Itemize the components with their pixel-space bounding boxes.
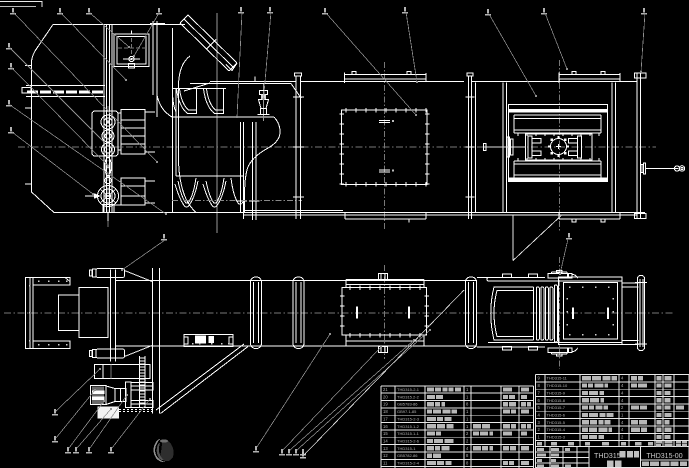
svg-text:THD315-00: THD315-00 (646, 453, 682, 460)
svg-text:THD315: THD315 (594, 451, 621, 460)
svg-text:19: 19 (383, 402, 388, 407)
svg-text:THD315-1: THD315-1 (397, 446, 416, 451)
svg-text:THD315.1-2: THD315.1-2 (397, 424, 420, 429)
svg-text:THD315-4: THD315-4 (547, 427, 566, 432)
svg-text:THD315.2-2: THD315.2-2 (397, 394, 420, 399)
svg-text:GB5782-86: GB5782-86 (397, 453, 418, 458)
svg-text:THD315-6: THD315-6 (547, 412, 566, 417)
svg-text:THD315-7: THD315-7 (547, 405, 566, 410)
svg-text:GB5783-86: GB5783-86 (397, 402, 418, 407)
svg-text:THD315-9: THD315-9 (547, 390, 566, 395)
svg-text:11: 11 (383, 461, 388, 466)
svg-text:THD315-2-6: THD315-2-6 (397, 438, 420, 443)
svg-text:GB97.1-85: GB97.1-85 (397, 409, 417, 414)
svg-text:THD315-3: THD315-3 (547, 435, 566, 440)
svg-text:13: 13 (383, 446, 388, 451)
svg-text:THD315-8: THD315-8 (547, 398, 566, 403)
svg-text:18: 18 (383, 409, 388, 414)
svg-text:THD315-11: THD315-11 (547, 376, 568, 381)
svg-text:20: 20 (383, 394, 388, 399)
svg-text:12: 12 (383, 453, 388, 458)
svg-text:THD315-2-1: THD315-2-1 (397, 387, 420, 392)
svg-text:THD315-2-4: THD315-2-4 (397, 461, 420, 466)
svg-text:21: 21 (383, 387, 388, 392)
svg-text:THD315.1-1: THD315.1-1 (397, 431, 420, 436)
svg-text:16: 16 (383, 424, 388, 429)
svg-text:THD315-10: THD315-10 (547, 383, 568, 388)
svg-text:17: 17 (383, 416, 388, 421)
svg-text:THD315-2-3: THD315-2-3 (397, 416, 420, 421)
svg-text:THD315-5: THD315-5 (547, 420, 566, 425)
svg-text:15: 15 (383, 431, 388, 436)
svg-text:14: 14 (383, 438, 388, 443)
